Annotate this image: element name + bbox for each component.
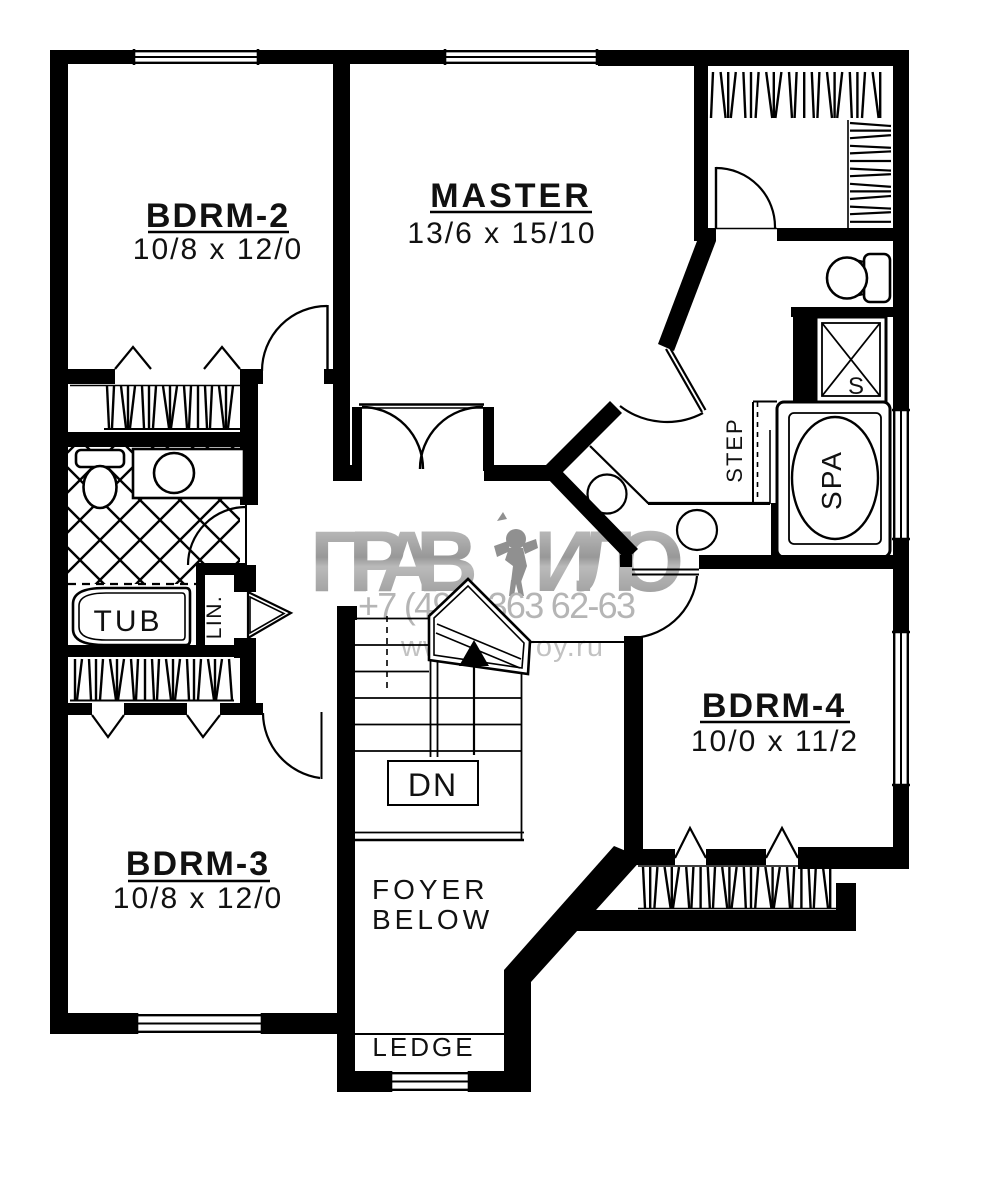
svg-text:BDRM-3: BDRM-3 xyxy=(126,845,270,883)
svg-text:10/0 x 11/2: 10/0 x 11/2 xyxy=(691,725,859,758)
svg-text:TUB: TUB xyxy=(94,605,163,638)
svg-text:13/6 x 15/10: 13/6 x 15/10 xyxy=(407,217,596,250)
svg-text:LIN.: LIN. xyxy=(203,595,226,640)
svg-text:SPA: SPA xyxy=(816,450,847,510)
svg-text:BELOW: BELOW xyxy=(372,904,493,935)
svg-text:FOYER: FOYER xyxy=(372,874,488,905)
svg-text:BDRM-4: BDRM-4 xyxy=(702,687,846,725)
svg-text:10/8 x 12/0: 10/8 x 12/0 xyxy=(113,882,283,915)
svg-text:STEP: STEP xyxy=(722,417,747,482)
svg-text:DN: DN xyxy=(408,767,458,803)
svg-text:10/8 x 12/0: 10/8 x 12/0 xyxy=(133,233,303,266)
svg-text:BDRM-2: BDRM-2 xyxy=(146,197,290,235)
svg-text:S: S xyxy=(848,373,864,400)
svg-text:MASTER: MASTER xyxy=(430,177,592,215)
svg-text:LEDGE: LEDGE xyxy=(372,1032,475,1062)
